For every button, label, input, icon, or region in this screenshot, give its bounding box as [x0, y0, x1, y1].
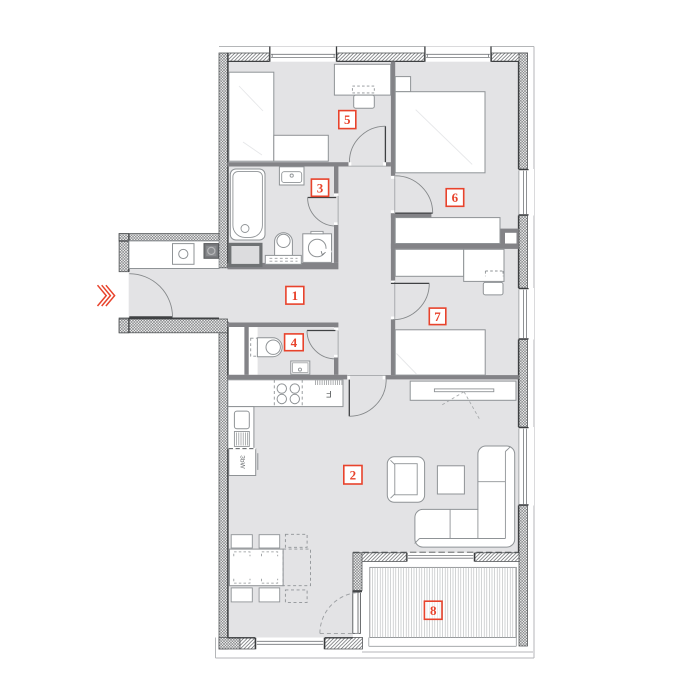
svg-text:2: 2 — [350, 468, 357, 483]
svg-text:3: 3 — [317, 180, 324, 195]
svg-text:3bW: 3bW — [238, 455, 245, 469]
svg-text:5: 5 — [344, 112, 351, 127]
svg-text:F: F — [326, 389, 332, 399]
svg-text:4: 4 — [291, 335, 298, 350]
svg-text:6: 6 — [452, 190, 459, 205]
svg-text:1: 1 — [292, 288, 299, 303]
svg-text:7: 7 — [434, 309, 441, 324]
svg-text:8: 8 — [430, 603, 437, 618]
